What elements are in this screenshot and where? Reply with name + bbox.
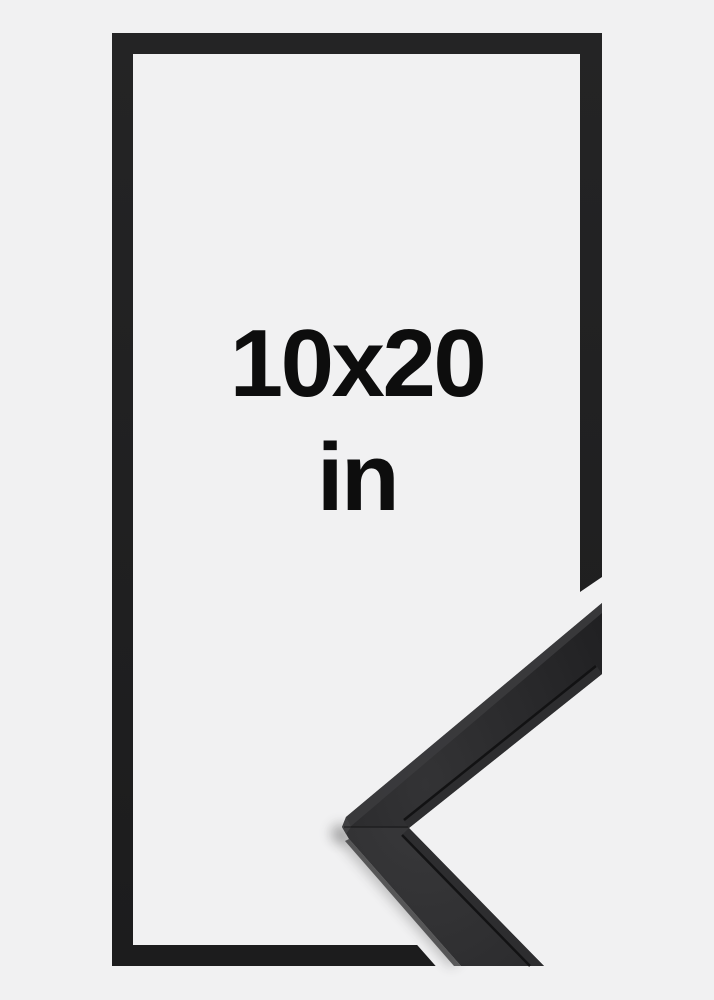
size-label-unit: in [133, 430, 581, 526]
frame-product-photo: 10x20 in [0, 0, 714, 1000]
size-label-dimensions: 10x20 [133, 316, 581, 412]
